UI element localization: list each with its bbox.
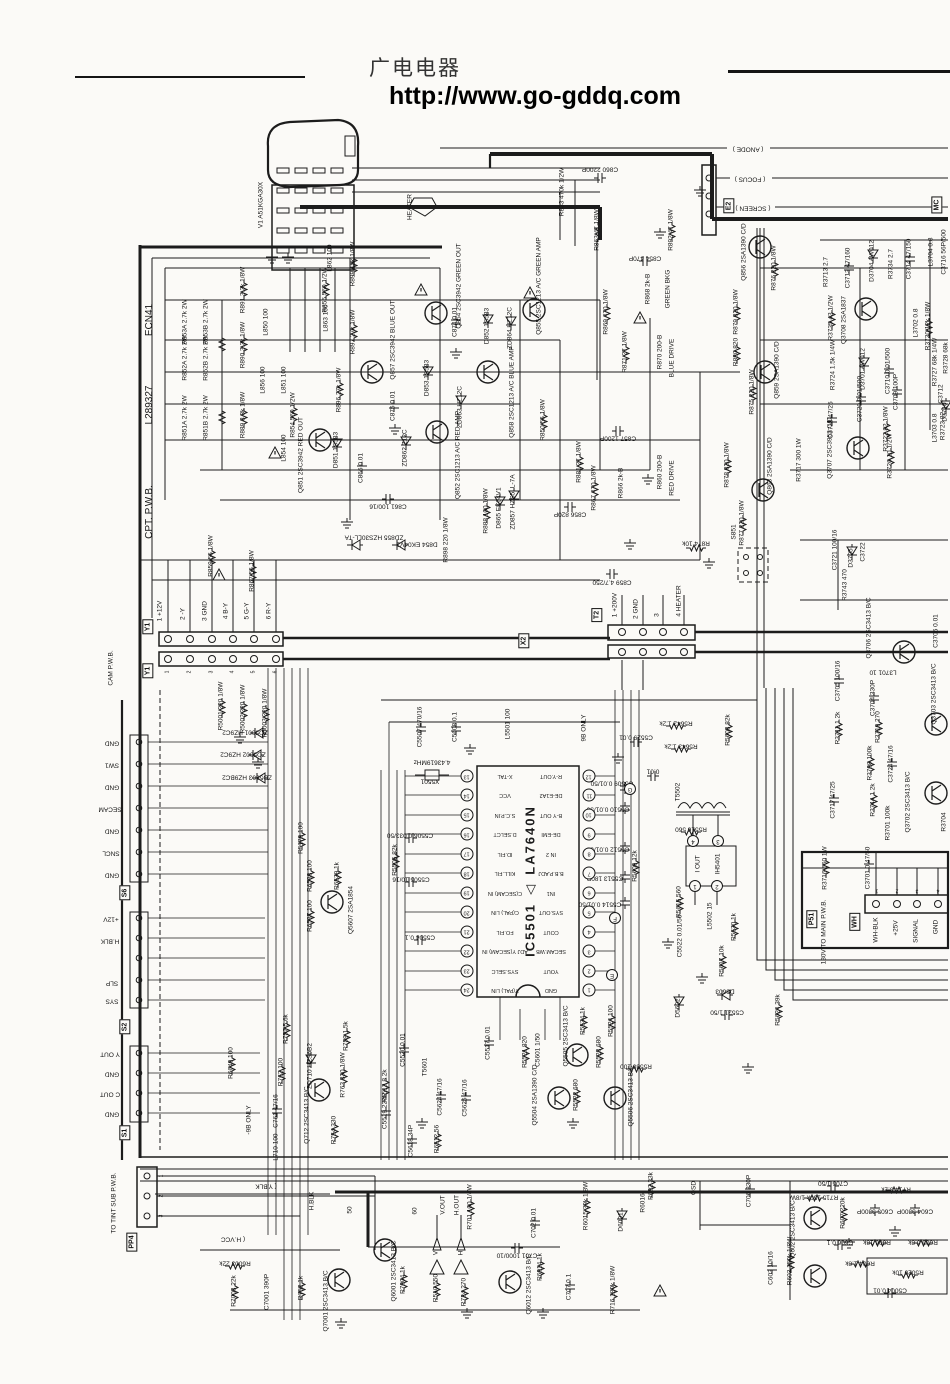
ih5401-block: [676, 803, 736, 906]
ic-pin-number: 24: [461, 983, 474, 996]
crystal-x5501: [425, 770, 439, 780]
diode-symbols: [248, 247, 950, 1224]
ic-pin-number: 1: [583, 983, 596, 996]
ic-pin-number: 5: [583, 906, 596, 919]
ic-pin-number: 13: [461, 770, 474, 783]
ic-pin-label: X-TAL: [497, 773, 512, 779]
ic-pin-label: R-Y.OUT: [540, 773, 562, 779]
ic-pin-label: ID.FIL: [498, 851, 513, 857]
board-frame: [122, 245, 948, 1247]
ic-pin-label: C(PAL) LIN: [491, 909, 519, 915]
ic-pin-label: DE-EMI: [541, 831, 560, 837]
ic-pin-number: 3: [583, 945, 596, 958]
ic-pin-number: 17: [461, 847, 474, 860]
ic-pin-number: 8: [583, 847, 596, 860]
ic-pin-label: D.SELCT: [493, 831, 516, 837]
top-wires: [300, 148, 948, 380]
ic-pin-number: 4: [583, 925, 596, 938]
transistor-symbols: [308, 236, 947, 1293]
ic-pin-label: GND: [545, 987, 557, 993]
ic-pin-number: 9: [583, 828, 596, 841]
ic-pin-label: SECAM.WB: [536, 948, 566, 954]
ic5501-title: IC5501 △ LA7640N: [523, 805, 538, 957]
ic-pin-label: S.C.P.IN: [495, 812, 516, 818]
ic-pin-label: COUT: [543, 929, 559, 935]
capacitor-symbols: [272, 173, 920, 1298]
ic-pin-label: B-Y OUT: [540, 812, 562, 818]
ic-pin-label: FO.FIL: [496, 929, 513, 935]
ic-pin-number: 23: [461, 964, 474, 977]
ic-pin-number: 18: [461, 867, 474, 880]
ic-pin-label: VCC: [499, 792, 511, 798]
ic-pin-number: 10: [583, 808, 596, 821]
ic-pin-label: KILL.FIL: [495, 870, 516, 876]
connector-t1: [159, 560, 610, 666]
ic-pin-label: C(SECAM) IN: [488, 890, 522, 896]
ic-pin-number: 21: [461, 925, 474, 938]
ic-pin-number: 20: [461, 906, 474, 919]
ic-pin-number: 12: [583, 770, 596, 783]
ic-pin-label: YOUT: [543, 968, 558, 974]
ic-pin-label: IN1: [547, 890, 556, 896]
ic-pin-number: 11: [583, 789, 596, 802]
rgb-stage-wires: [140, 228, 768, 582]
ic-pin-label: ADJ Y(SECAM) IN: [482, 948, 528, 954]
ic-pin-number: 15: [461, 808, 474, 821]
page: 广电电器 http://www.go-gddq.com: [0, 0, 950, 1384]
ic-pin-number: 7: [583, 867, 596, 880]
ic-pin-label: SYS.OUT: [539, 909, 563, 915]
ic5501-outline: [405, 766, 615, 1040]
bottom-wires: [137, 1167, 948, 1310]
ic-pin-number: 14: [461, 789, 474, 802]
connector-t2: [608, 595, 948, 690]
ic-pin-number: 2: [583, 964, 596, 977]
ic-pin-number: 19: [461, 886, 474, 899]
ic-pin-label: Y(PAL) LIN: [491, 987, 518, 993]
schematic-canvas: [0, 0, 950, 1384]
ic-pin-number: 6: [583, 886, 596, 899]
ic-pin-label: IN 2: [546, 851, 556, 857]
left-pin-strips: [130, 735, 268, 1122]
wire-bundles: [268, 228, 948, 1320]
ic-pin-label: SYS.SELC: [492, 968, 519, 974]
ic-pin-number: 16: [461, 828, 474, 841]
ic-pin-number: 22: [461, 945, 474, 958]
pp4-connector: [137, 1167, 157, 1227]
ic-pin-label: DE-E1A2: [540, 792, 563, 798]
resistor-symbols: [209, 222, 933, 1304]
p51-frame: [757, 688, 948, 1000]
ic-pin-label: B.B.P.ADJ: [538, 870, 563, 876]
